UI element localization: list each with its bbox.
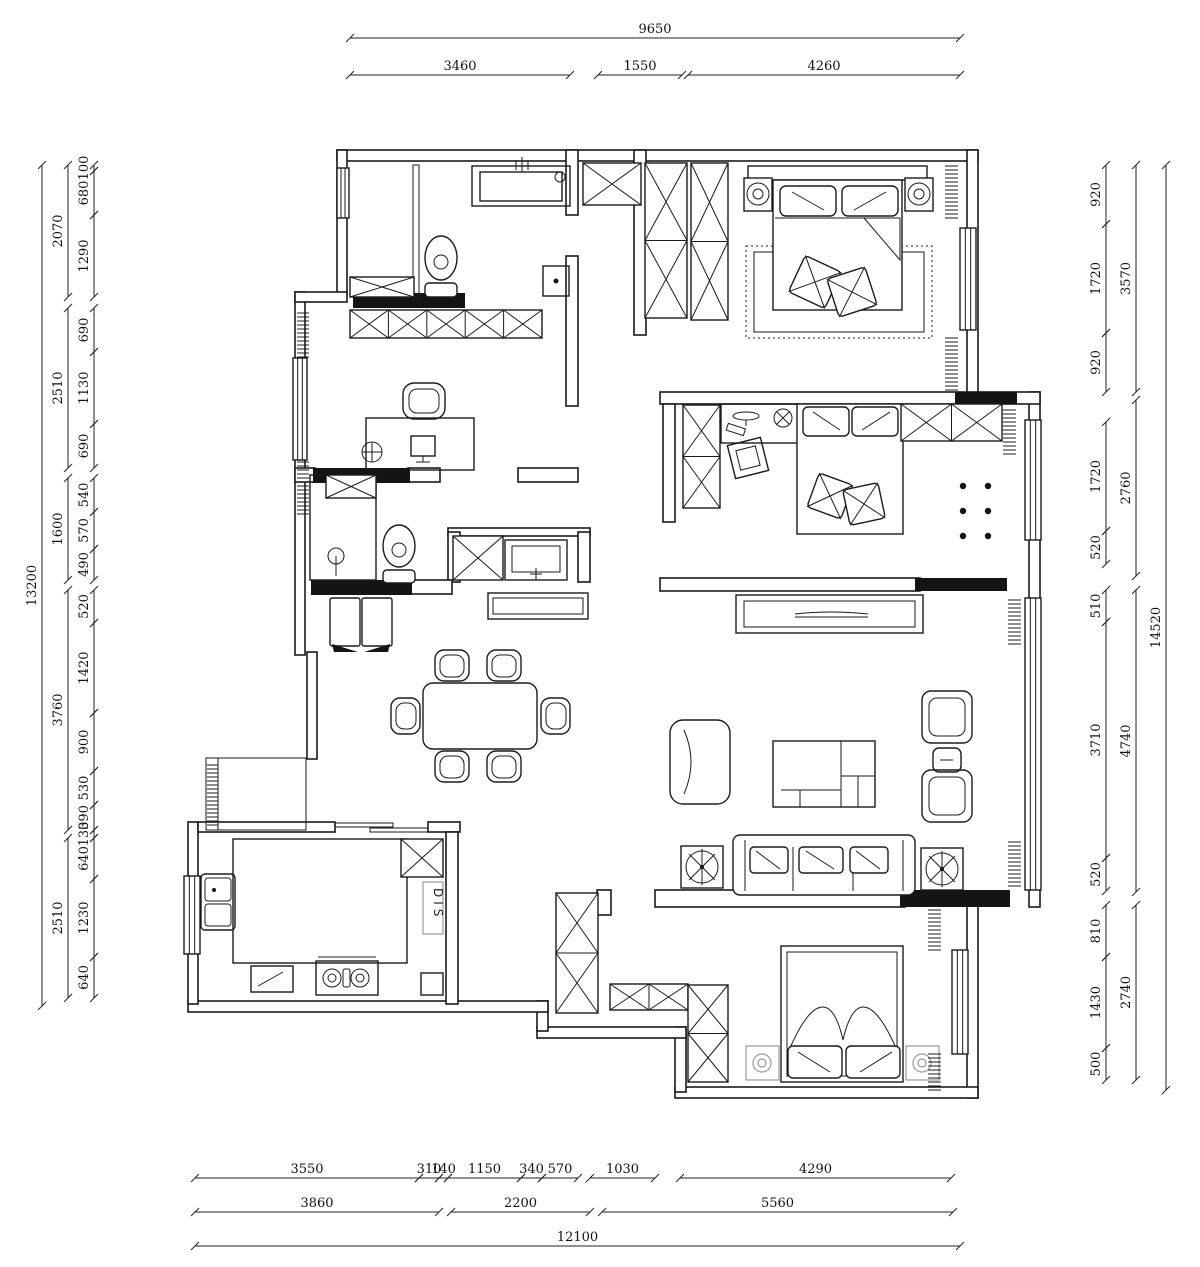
dimension-label: 920 — [1089, 182, 1104, 207]
dimension-chain: 9650 — [346, 22, 964, 42]
dimension-label: 3710 — [1089, 723, 1104, 756]
dimension-label: 3550 — [290, 1162, 323, 1177]
dimension-label: 100 — [77, 156, 92, 181]
dimension-label: 9650 — [638, 22, 671, 37]
nightstand — [906, 1046, 939, 1080]
dimension-label: 140 — [431, 1162, 456, 1177]
radiator-hatch — [1008, 842, 1021, 886]
dimension-label: 4740 — [1119, 724, 1134, 757]
dimension-label: 920 — [1089, 350, 1104, 375]
nightstand — [905, 178, 933, 211]
living-room — [670, 691, 972, 895]
headboard — [748, 166, 927, 180]
counter-block — [421, 973, 443, 995]
radiator-hatch — [1003, 410, 1016, 454]
x-cabinet — [683, 405, 720, 508]
dimension-label: 2200 — [504, 1196, 537, 1211]
window — [952, 950, 968, 1054]
x-cabinet — [556, 893, 598, 1013]
walls — [188, 150, 1040, 1098]
dimension-label: 1720 — [1089, 460, 1104, 493]
dining-chair — [541, 698, 570, 734]
dimension-label: 340 — [519, 1162, 544, 1177]
master-bedroom — [744, 166, 933, 338]
sofa — [733, 835, 915, 895]
dimension-label: 1150 — [468, 1162, 501, 1177]
pillow — [846, 1046, 900, 1078]
desk-chair — [403, 383, 445, 419]
dimension-label: 4260 — [807, 59, 840, 74]
bedroom-3 — [746, 946, 939, 1082]
potted-plant — [681, 846, 723, 888]
structural-columns — [311, 293, 1017, 907]
x-cabinet — [350, 277, 414, 297]
dimension-label: 1720 — [1089, 262, 1104, 295]
dimension-label: 1550 — [623, 59, 656, 74]
cushion — [843, 483, 886, 526]
dimension-chain: 13200 — [25, 161, 46, 1010]
dimension-label: 640 — [77, 846, 92, 871]
window — [337, 168, 349, 218]
dining-table — [423, 683, 537, 749]
x-cabinet — [688, 985, 728, 1082]
kitchen-sink — [201, 874, 235, 930]
x-cabinet — [901, 404, 1002, 441]
dimension-chain: 386022005560 — [191, 1196, 957, 1216]
dimension-label: 4290 — [799, 1162, 832, 1177]
dimension-label: 690 — [77, 318, 92, 343]
counter-inner-edge — [233, 839, 407, 963]
radiator-hatch — [1008, 600, 1021, 644]
floor-drain — [328, 548, 344, 576]
x-cabinet — [645, 163, 687, 318]
dimension-label: 5560 — [761, 1196, 794, 1211]
study-room — [362, 383, 474, 470]
dimension-label: 3460 — [443, 59, 476, 74]
dimension-label: 570 — [548, 1162, 573, 1177]
dimension-label: 680 — [77, 181, 92, 206]
dining-chair — [391, 698, 420, 734]
refrigerator — [330, 598, 392, 652]
shelf — [488, 593, 588, 619]
pillow — [788, 1046, 842, 1078]
dining-chair — [487, 650, 521, 681]
pillow — [803, 407, 849, 436]
toilet — [383, 525, 415, 583]
x-cabinet — [610, 984, 688, 1010]
armchair — [922, 770, 972, 822]
dimension-label: 14520 — [1149, 607, 1164, 648]
dimension-chain: 12100 — [191, 1230, 964, 1250]
dimension-label: 520 — [1089, 862, 1104, 887]
dimension-label: 3860 — [300, 1196, 333, 1211]
dimension-label: 810 — [1089, 919, 1104, 944]
dimension-chain: 3550310140115034057010304290 — [191, 1162, 955, 1182]
dimension-label: 530 — [77, 776, 92, 801]
balcony — [206, 758, 306, 830]
radiator-hatch — [945, 338, 958, 390]
dimension-label: 1600 — [51, 512, 66, 545]
dimension-label: 1420 — [77, 651, 92, 684]
dimension-label: 12100 — [557, 1230, 598, 1245]
x-cabinet — [691, 163, 728, 320]
dimension-chain: 9201720920172052051037105208101430500 — [1089, 161, 1110, 1084]
dimension-label: 500 — [1089, 1052, 1104, 1077]
dining-room — [391, 650, 570, 782]
dining-chair — [435, 650, 469, 681]
dimension-label: 900 — [77, 730, 92, 755]
cutting-board — [251, 966, 293, 992]
toilet — [425, 236, 457, 297]
window — [1025, 598, 1041, 890]
x-cabinet — [350, 310, 542, 338]
x-cabinet — [453, 536, 503, 580]
drain-box — [543, 266, 569, 296]
armchair — [922, 691, 972, 743]
dimension-label: 490 — [77, 552, 92, 577]
dimension-label: 130 — [77, 822, 92, 847]
tv-cabinet — [736, 595, 923, 633]
dishwasher-cabinet: DIS — [423, 882, 445, 934]
dimension-chain: 3570276047402740 — [1119, 161, 1140, 1084]
floor-plan-drawing: DIS 965034601550426035503101401150340570… — [0, 0, 1200, 1267]
dimension-label: 13200 — [25, 565, 40, 606]
ceiling-light-symbol — [362, 442, 382, 462]
x-cabinet — [326, 475, 376, 498]
dimension-label: 520 — [77, 594, 92, 619]
side-table — [933, 748, 961, 772]
dishwasher-label: DIS — [431, 888, 445, 920]
nightstand — [744, 178, 772, 211]
dimension-label: 2740 — [1119, 976, 1134, 1009]
nightstand — [746, 1046, 779, 1080]
x-cabinet — [583, 163, 641, 205]
lounge-chair — [670, 720, 730, 804]
radiator-hatch — [928, 906, 941, 950]
window — [1025, 420, 1041, 540]
sliding-door — [335, 823, 428, 832]
dimension-label: 2760 — [1119, 471, 1134, 504]
radiator-hatch — [207, 765, 218, 825]
dining-chair — [435, 751, 469, 782]
dimension-chain: 1006801290690113069054057049052014209005… — [77, 156, 98, 1002]
laundry-sink — [505, 540, 567, 580]
dimension-label: 520 — [1089, 535, 1104, 560]
vanity-sink — [472, 157, 570, 206]
dimension-chain: 346015504260 — [346, 59, 964, 79]
dimension-label: 2510 — [51, 901, 66, 934]
dimension-label: 540 — [77, 483, 92, 508]
monitor — [411, 436, 435, 462]
window — [960, 228, 976, 330]
dimension-label: 2510 — [51, 371, 66, 404]
dimension-label: 640 — [77, 965, 92, 990]
floor-dots — [960, 483, 991, 539]
dimension-label: 1130 — [77, 371, 92, 404]
dimension-label: 690 — [77, 434, 92, 459]
x-cabinet — [401, 839, 443, 877]
dimension-label: 1230 — [77, 901, 92, 934]
dimension-label: 3570 — [1119, 262, 1134, 295]
dimension-chain: 14520 — [1149, 161, 1170, 1094]
bathroom-1 — [413, 157, 570, 297]
dimension-label: 510 — [1089, 594, 1104, 619]
dimension-label: 1430 — [1089, 986, 1104, 1019]
dimension-label: 2070 — [51, 214, 66, 247]
radiator-hatch — [945, 166, 958, 218]
dimension-label: 3760 — [51, 693, 66, 726]
dimension-label: 570 — [77, 518, 92, 543]
dining-chair — [487, 751, 521, 782]
dimension-lines: 9650346015504260355031014011503405701030… — [25, 22, 1170, 1250]
floor-plan-page: DIS 965034601550426035503101401150340570… — [0, 0, 1200, 1267]
potted-plant — [921, 848, 963, 890]
dimension-label: 1030 — [606, 1162, 639, 1177]
coffee-table — [773, 741, 875, 807]
dimension-label: 1290 — [77, 239, 92, 272]
window — [184, 876, 200, 954]
dimension-chain: 20702510160037602510 — [51, 161, 72, 1002]
window — [293, 358, 307, 460]
